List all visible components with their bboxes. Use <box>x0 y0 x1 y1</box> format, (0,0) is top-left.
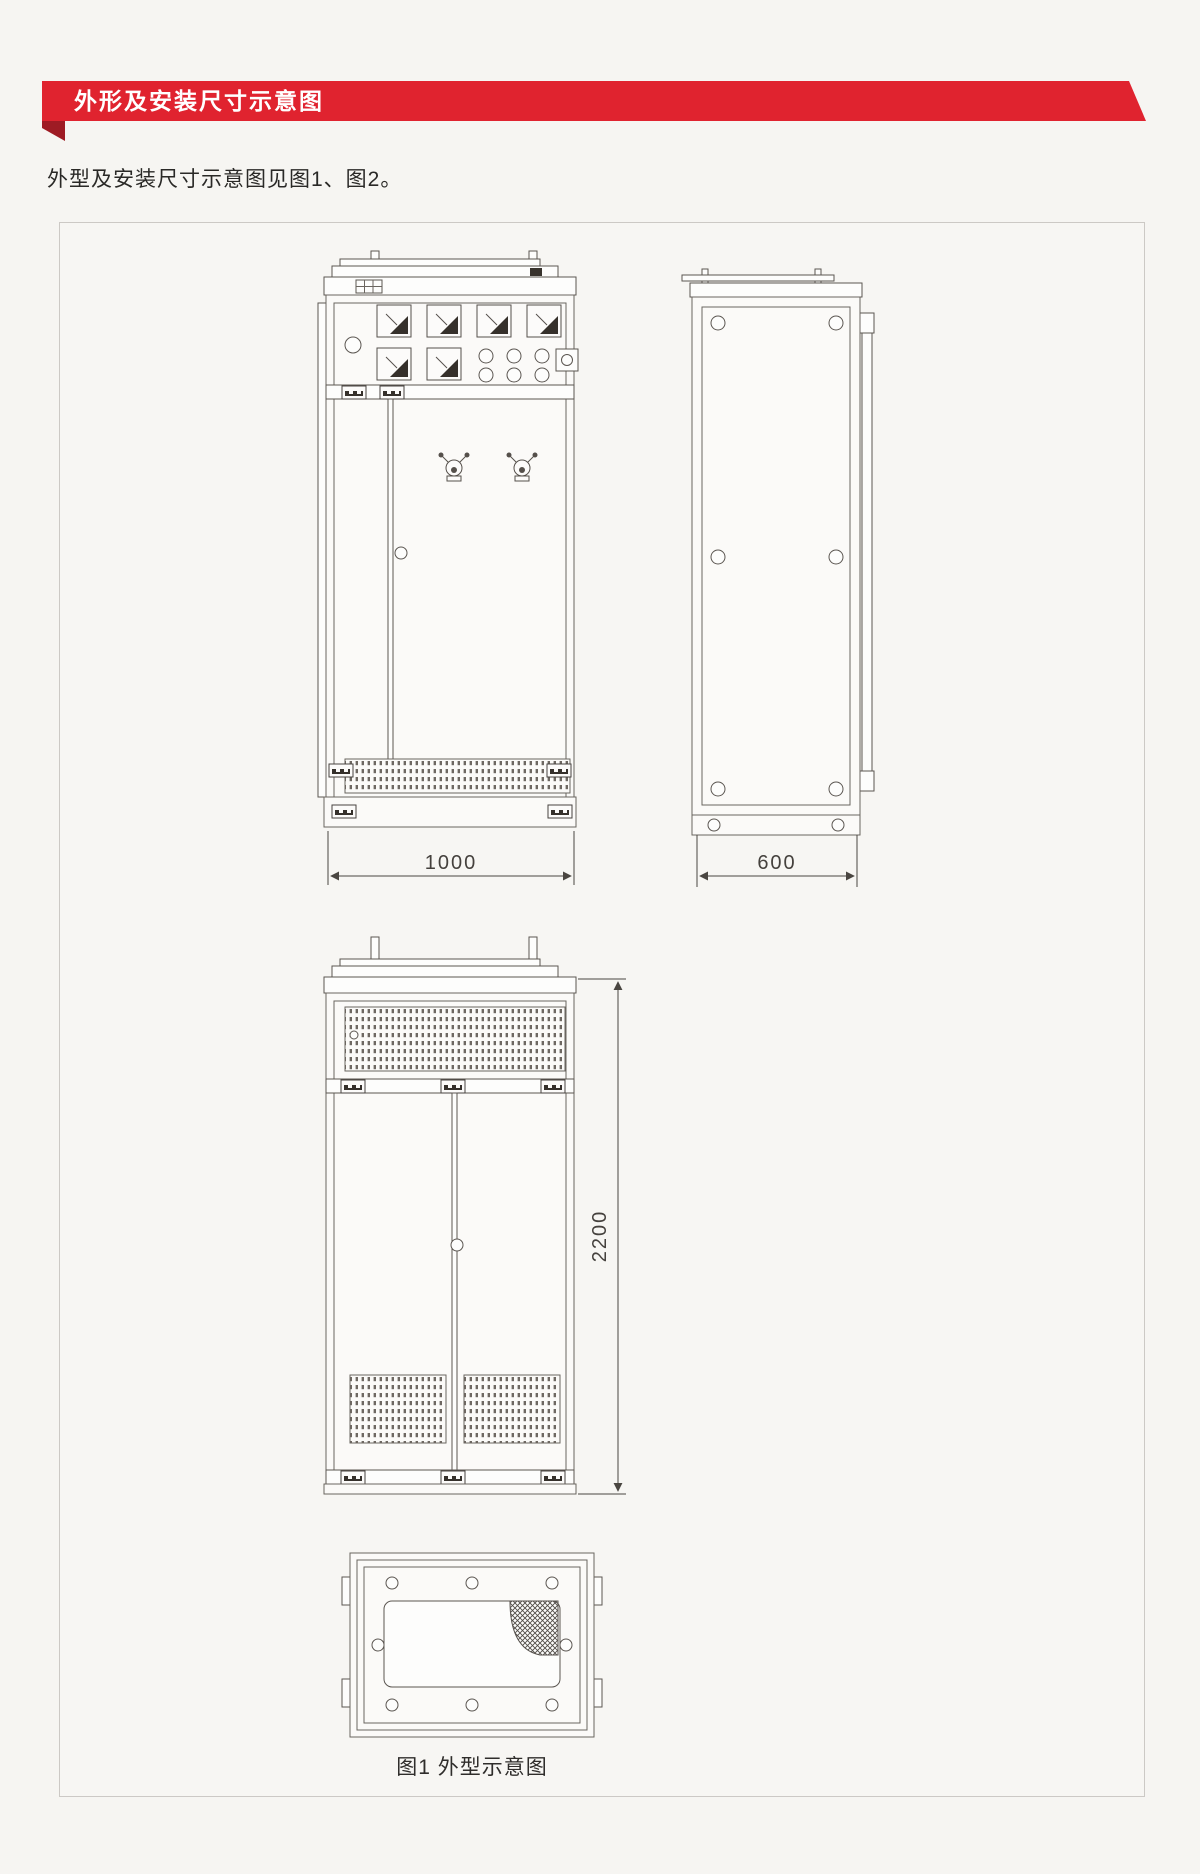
top-view-drawing <box>342 1553 602 1737</box>
front-view-drawing <box>318 251 578 827</box>
cable-clamp-icon <box>441 1080 465 1093</box>
figure-caption: 图1 外型示意图 <box>342 1751 602 1781</box>
mounting-foot-icon <box>332 805 356 818</box>
cable-clamp-icon <box>547 764 571 777</box>
cable-clamp-icon <box>342 386 366 399</box>
analog-meter-icon <box>377 305 411 337</box>
side-view-drawing <box>682 269 874 835</box>
banner-fold <box>42 121 65 141</box>
door-lock-icon <box>345 337 361 353</box>
intro-text: 外型及安装尺寸示意图见图1、图2。 <box>47 163 402 193</box>
cable-clamp-icon <box>329 764 353 777</box>
analog-meter-icon <box>427 348 461 380</box>
cabinet-height-label: 2200 <box>589 1210 611 1263</box>
analog-meter-icon <box>377 348 411 380</box>
outline-drawing: 1000 <box>60 223 1144 1796</box>
lifting-lug-icon <box>529 937 537 961</box>
front-width-label: 1000 <box>425 852 478 874</box>
section-title: 外形及安装尺寸示意图 <box>42 81 324 121</box>
door-divider <box>388 399 393 759</box>
vent-grille <box>345 1007 565 1071</box>
analog-meter-icon <box>477 305 511 337</box>
cable-clamp-icon <box>341 1471 365 1484</box>
cable-clamp-icon <box>380 386 404 399</box>
vent-grille <box>464 1375 560 1443</box>
cable-clamp-icon <box>541 1080 565 1093</box>
door-handle-icon <box>395 547 407 559</box>
vent-grille <box>350 1375 446 1443</box>
document-page: 外形及安装尺寸示意图 外型及安装尺寸示意图见图1、图2。 <box>0 0 1200 1874</box>
analog-meter-icon <box>527 305 561 337</box>
dimension-cabinet-height: 2200 <box>578 979 626 1494</box>
back-view-drawing <box>324 937 576 1494</box>
dimension-front-width: 1000 <box>328 831 574 885</box>
door-lock-icon <box>451 1239 463 1251</box>
cable-clamp-icon <box>341 1080 365 1093</box>
dimension-side-depth: 600 <box>697 835 857 887</box>
side-depth-label: 600 <box>757 852 796 874</box>
mounting-foot-icon <box>548 805 572 818</box>
door-divider <box>452 1093 457 1470</box>
vent-grille <box>345 759 570 793</box>
analog-meter-icon <box>427 305 461 337</box>
section-header-banner: 外形及安装尺寸示意图 <box>42 81 1146 121</box>
cable-clamp-icon <box>441 1471 465 1484</box>
cable-clamp-icon <box>541 1471 565 1484</box>
lifting-lug-icon <box>371 937 379 961</box>
figure-frame: 1000 <box>59 222 1145 1797</box>
